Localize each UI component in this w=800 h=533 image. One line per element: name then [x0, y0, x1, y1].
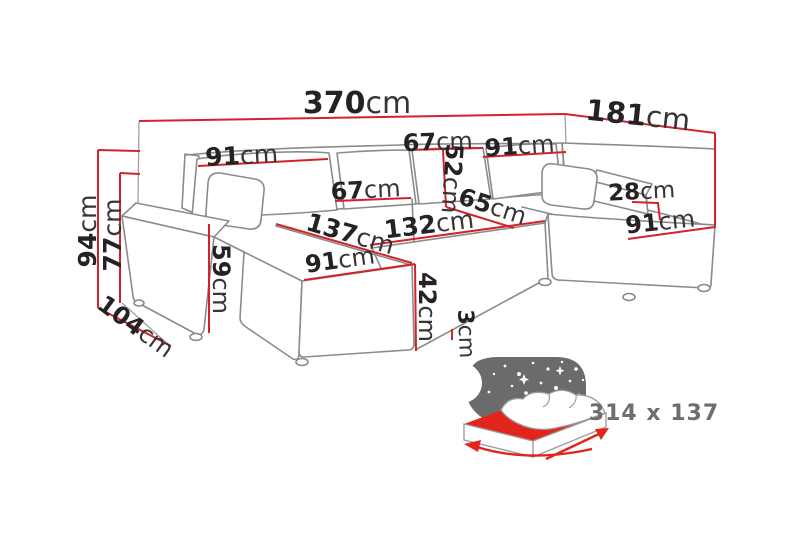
sofa-pillow-right	[542, 164, 597, 209]
dim-back-right-width: 91cm	[484, 130, 556, 163]
dim-leg-height: 3cm	[452, 309, 479, 359]
sofa-foot	[134, 300, 144, 306]
sofa-foot	[539, 279, 551, 286]
sofa-foot	[698, 285, 710, 292]
diagram-canvas: 370cm 181cm 91cm 67cm 67cm 52cm 91cm 28c…	[0, 0, 800, 533]
sofa-foot	[190, 334, 202, 341]
dim-total-width: 370cm	[303, 86, 411, 121]
dim-backrest-height: 77cm	[98, 199, 127, 272]
dim-right-depth: 181cm	[584, 93, 692, 138]
sofa-foot	[296, 359, 308, 366]
sofa-foot	[623, 294, 635, 301]
extension-drop-left	[138, 121, 139, 203]
sofa-dimension-diagram: 370cm 181cm 91cm 67cm 67cm 52cm 91cm 28c…	[0, 0, 800, 533]
moon-icon	[442, 363, 482, 403]
sleeping-area-label: 314 x 137	[589, 401, 719, 426]
dim-armrest-height: 59cm	[207, 244, 235, 314]
extension-drop-corner	[565, 115, 566, 143]
sleeping-function-icon: 314 x 137	[442, 357, 719, 459]
dim-back-left-width: 91cm	[204, 139, 278, 172]
dim-corner-armrest-height: 28cm	[607, 177, 675, 206]
sofa-left-chaise-front	[240, 252, 302, 359]
dim-seat-height: 42cm	[413, 272, 441, 342]
dim-back-mid-left-width: 67cm	[330, 174, 401, 206]
